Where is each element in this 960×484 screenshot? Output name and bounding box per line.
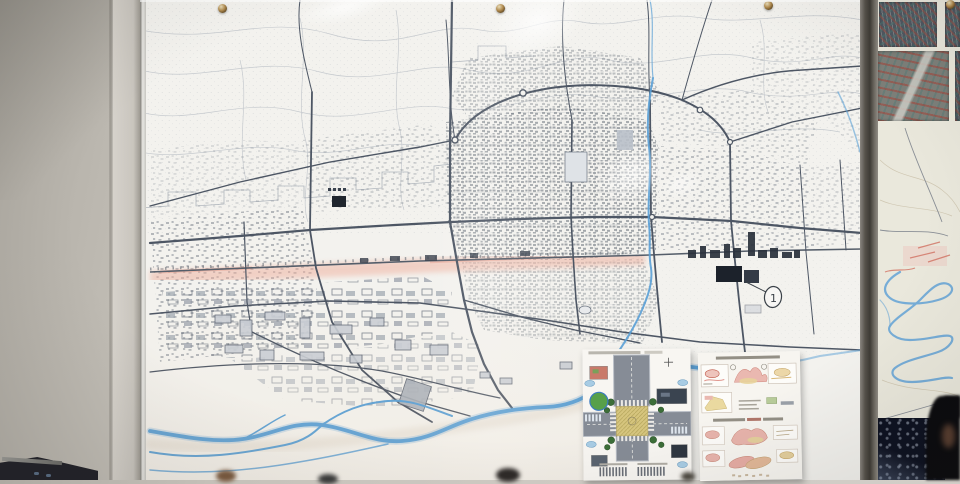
photo-scene: { "scene": { "type": "photograph", "subj…	[0, 0, 960, 480]
aerial-photo	[878, 51, 949, 121]
annotation-number: 1	[770, 292, 777, 305]
frame-left-edge	[140, 0, 146, 480]
mounting-screw-icon	[218, 4, 227, 13]
frame-divider	[860, 0, 878, 480]
equipment-button	[34, 472, 39, 475]
diagram-sheet-drawing	[698, 351, 802, 481]
mounting-screw-icon	[496, 4, 505, 13]
mounting-screw-icon	[764, 1, 773, 10]
foreground-object	[318, 474, 338, 484]
intersection-plan-drawing	[582, 349, 691, 481]
wall-shadow	[0, 0, 120, 200]
plan-plaza	[616, 406, 648, 436]
poster-diagram-sheet	[698, 351, 802, 481]
aerial-photo	[955, 51, 960, 121]
aerial-photo	[945, 2, 960, 47]
wall-strip	[113, 0, 142, 480]
foreground-object	[216, 470, 236, 482]
aerial-photo	[879, 2, 937, 47]
equipment-button	[46, 474, 51, 477]
mounting-screw-icon	[946, 0, 955, 9]
poster-intersection-plan	[582, 349, 691, 481]
frame-top-edge	[140, 0, 862, 2]
map-board: 1	[140, 0, 862, 480]
person-skin-hint	[942, 424, 955, 448]
